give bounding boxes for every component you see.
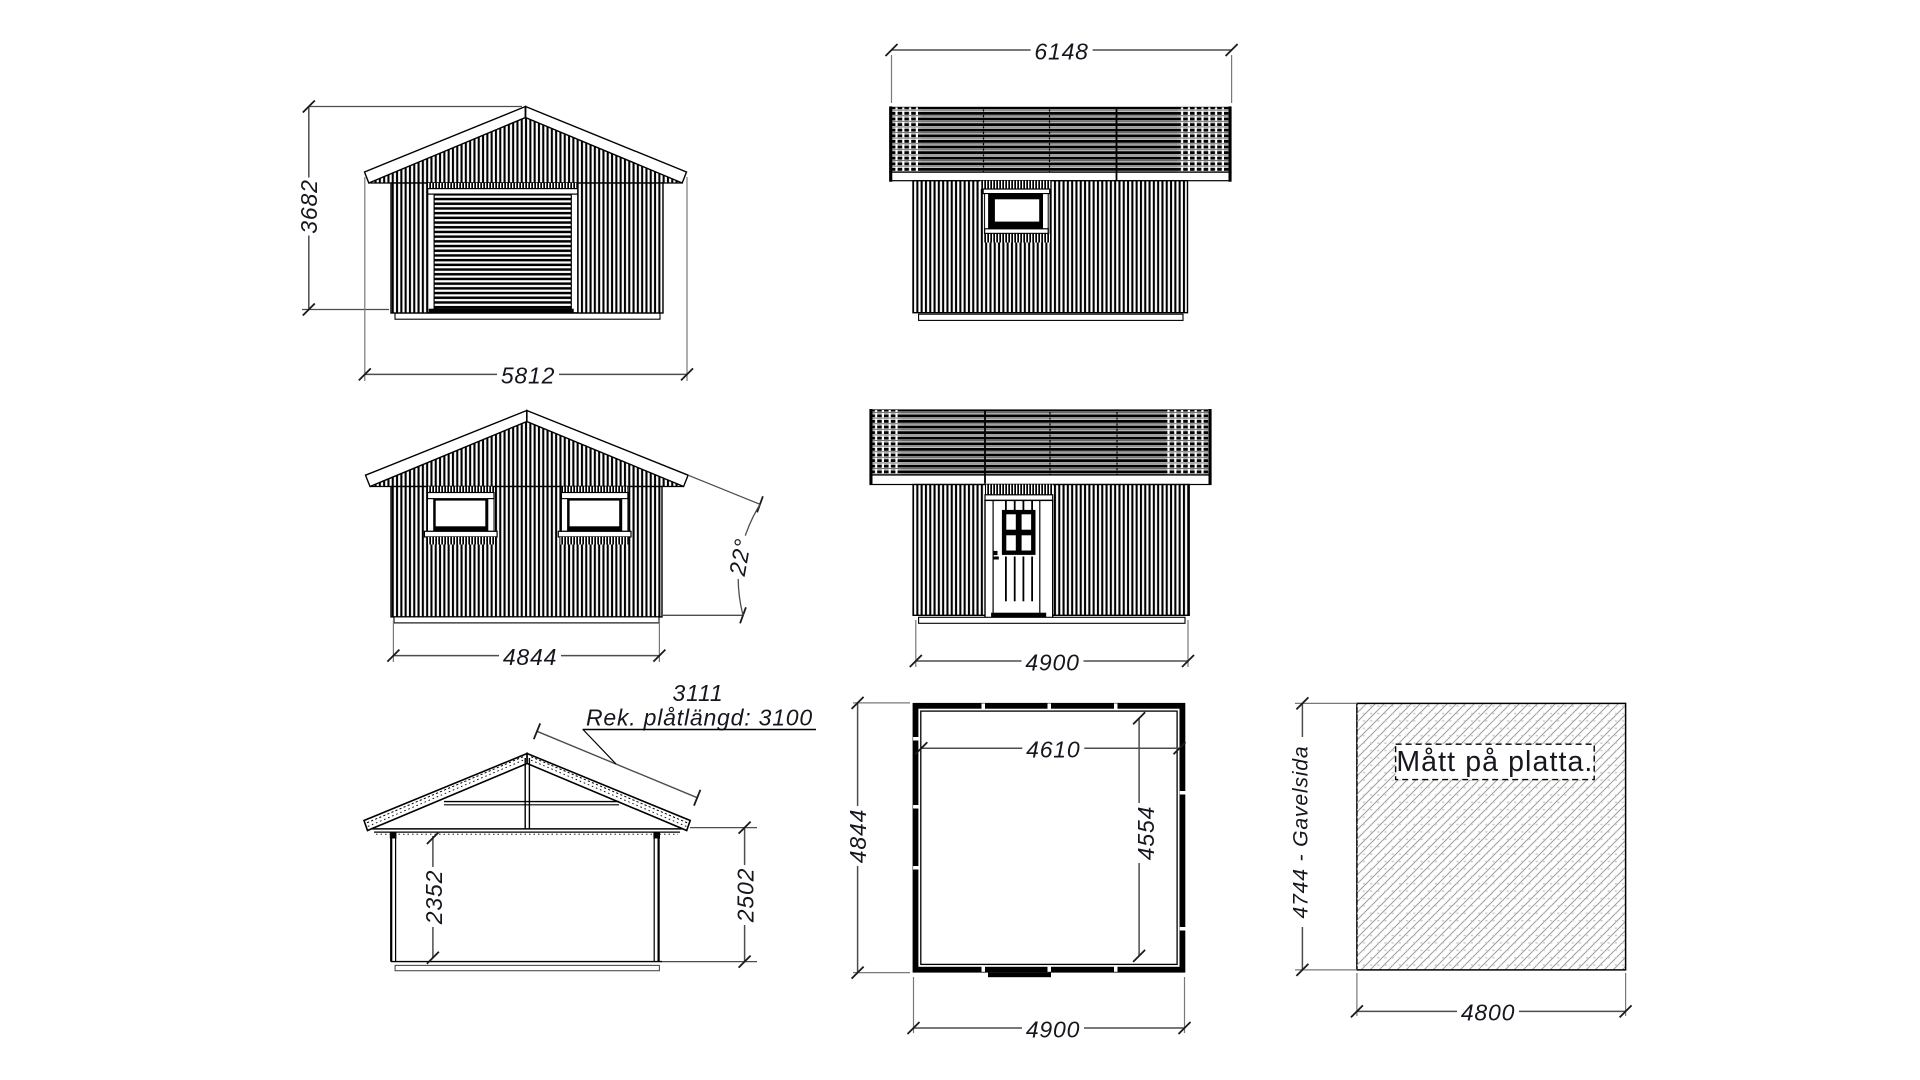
svg-text:4844: 4844 [503,644,557,670]
svg-text:2352: 2352 [421,870,447,925]
svg-text:4900: 4900 [1026,1016,1080,1042]
svg-text:4844: 4844 [845,809,871,863]
svg-text:4610: 4610 [1026,737,1080,763]
svg-text:4554: 4554 [1133,806,1159,860]
svg-text:5812: 5812 [501,363,555,389]
svg-text:4900: 4900 [1025,649,1079,675]
svg-text:2502: 2502 [733,868,759,923]
svg-text:Rek. plåtlängd: 3100: Rek. plåtlängd: 3100 [586,705,813,731]
svg-text:Mått på platta.: Mått på platta. [1396,746,1593,778]
svg-text:4800: 4800 [1461,1000,1515,1026]
svg-text:3682: 3682 [296,179,322,233]
svg-text:6148: 6148 [1034,38,1088,64]
svg-text:4744 - Gavelsida: 4744 - Gavelsida [1290,746,1313,919]
svg-text:3111: 3111 [673,680,724,706]
